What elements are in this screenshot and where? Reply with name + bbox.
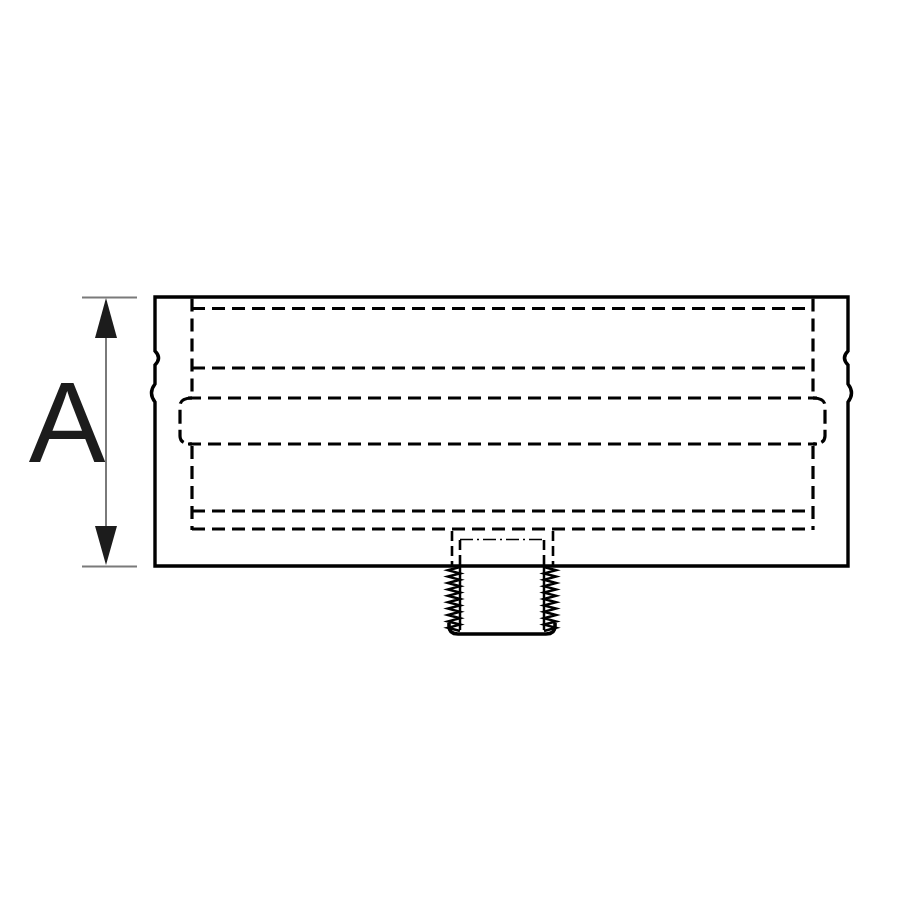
- outer-body-path: [152, 297, 852, 566]
- dimension-label: A: [29, 358, 106, 486]
- drawing-page: A: [0, 0, 900, 900]
- drain-fitting-threads: [448, 566, 556, 631]
- drain-fitting: [448, 531, 556, 634]
- thread-zigzag-left: [448, 567, 460, 631]
- arrowhead-down-icon: [95, 526, 117, 565]
- drain-fitting-hidden: [452, 531, 553, 566]
- fitting-bottom-cap: [449, 623, 555, 634]
- body-outline: [152, 297, 852, 566]
- thread-zigzag-right: [544, 567, 556, 631]
- hidden-left-bead-bump: [180, 398, 192, 444]
- arrowhead-up-icon: [95, 298, 117, 338]
- drawing-canvas: A: [0, 0, 900, 900]
- hidden-inner-contour: [180, 299, 825, 531]
- hidden-right-bead-bump: [813, 398, 825, 444]
